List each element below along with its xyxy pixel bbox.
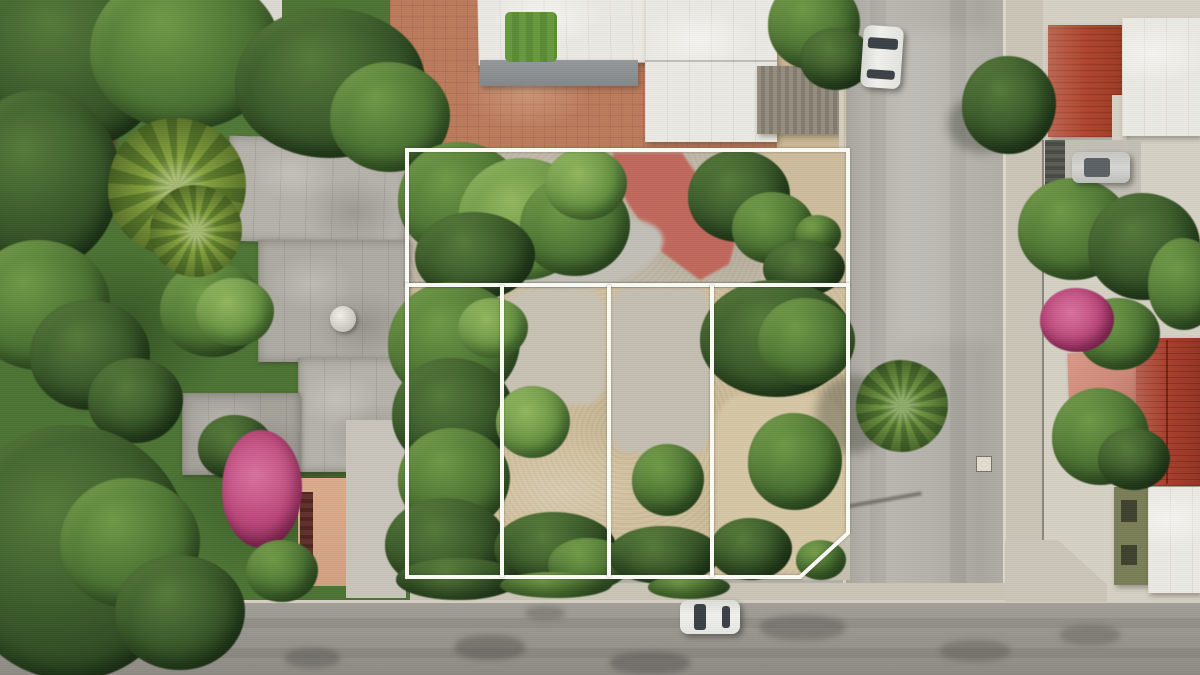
bush-lot3 [632,444,704,516]
awning-gray [480,60,638,86]
water-tank-dome [330,306,356,332]
asphalt-stain [760,615,845,640]
palm-tree [150,185,242,277]
grass-patch [505,12,557,62]
bush-lot4 [710,518,792,580]
asphalt-stain [610,652,690,674]
manhole-box [976,456,992,472]
hedge-outside-boundary [396,558,521,600]
hedge-outside-boundary [648,575,730,599]
car-rear-window [866,69,895,80]
white-roof-building [477,0,646,65]
hedge-outside-boundary [500,572,612,598]
right-street-tire-track [870,0,886,600]
asphalt-stain [455,635,525,660]
gravel-lot3 [611,288,710,453]
bush-lot1 [458,298,528,358]
car-windshield [868,37,899,50]
bougainvillea-right [1040,288,1114,352]
palm-tree-right-street [856,360,948,452]
tree-overhang-street [115,555,245,670]
olive-window [1121,545,1137,565]
bush [196,278,274,346]
bougainvillea-left [222,430,302,548]
car-windshield [694,604,706,630]
white-car-bottom-street [680,600,740,634]
asphalt-stain [285,648,340,668]
asphalt-stain [940,640,1010,662]
bush-lot4 [796,540,846,580]
roof-seam [645,60,777,62]
parked-car-driveway [1072,152,1130,183]
asphalt-stain [525,606,565,620]
white-roof-house-topright [1122,18,1200,136]
tree-canopy-upper-parcel [545,148,627,220]
white-building-bottomright [1148,487,1200,593]
tree-overhang-right-street [962,56,1056,154]
tree-canopy-lot4 [758,298,855,385]
white-car-right-street [860,25,904,90]
aerial-photo [0,0,1200,675]
car-rear-window [722,606,730,628]
bush-lot2 [496,386,570,458]
olive-window [1121,500,1137,522]
asphalt-stain [1060,625,1120,645]
bush [246,540,318,602]
round-tree-lot4 [748,413,842,510]
tree-over-pink-roof [1098,428,1170,490]
car-windows [1084,158,1110,177]
